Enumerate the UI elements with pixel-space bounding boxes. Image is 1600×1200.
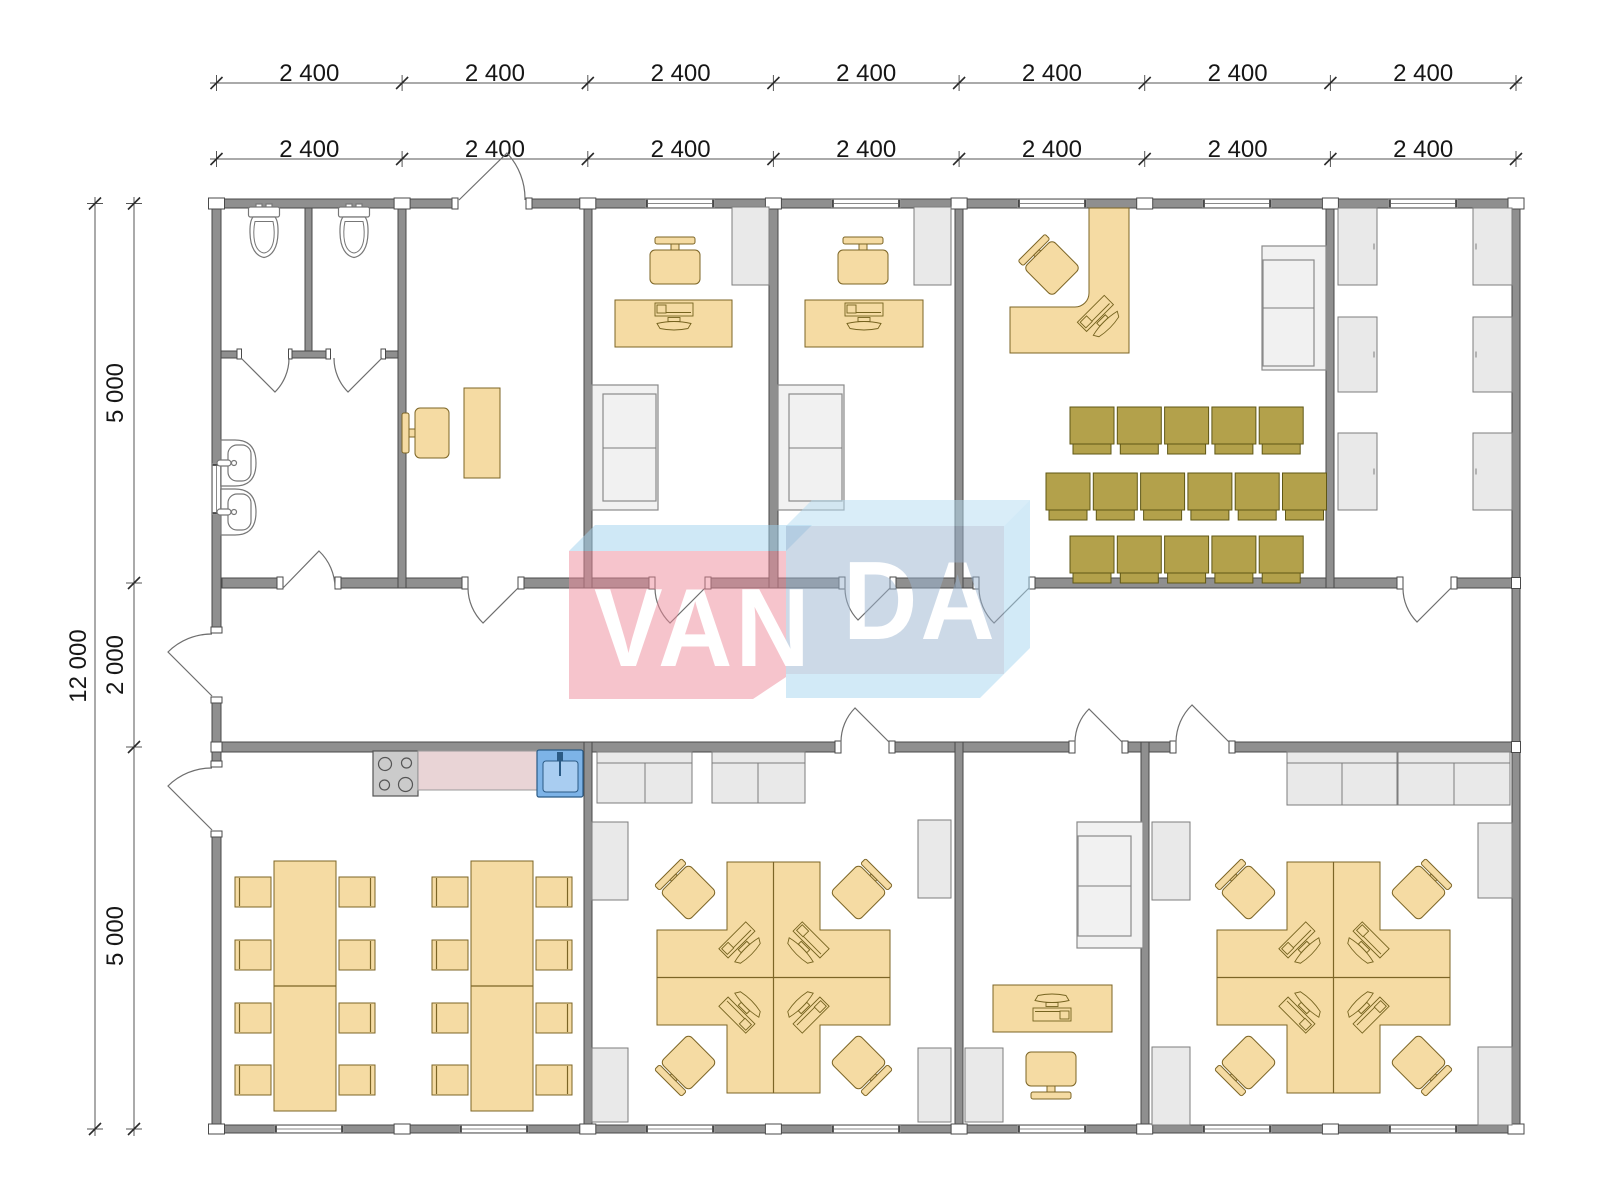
svg-text:12 000: 12 000 xyxy=(65,629,92,702)
svg-text:2 400: 2 400 xyxy=(465,136,525,163)
svg-text:2 400: 2 400 xyxy=(279,60,339,87)
svg-text:2 400: 2 400 xyxy=(651,136,711,163)
svg-text:2 000: 2 000 xyxy=(102,635,129,695)
svg-text:2 400: 2 400 xyxy=(1393,60,1453,87)
svg-text:2 400: 2 400 xyxy=(1022,60,1082,87)
svg-text:2 400: 2 400 xyxy=(1208,60,1268,87)
svg-text:2 400: 2 400 xyxy=(836,60,896,87)
svg-text:2 400: 2 400 xyxy=(1022,136,1082,163)
svg-text:2 400: 2 400 xyxy=(279,136,339,163)
svg-text:2 400: 2 400 xyxy=(465,60,525,87)
svg-text:2 400: 2 400 xyxy=(651,60,711,87)
svg-text:2 400: 2 400 xyxy=(1208,136,1268,163)
svg-text:2 400: 2 400 xyxy=(1393,136,1453,163)
svg-text:5 000: 5 000 xyxy=(102,363,129,423)
svg-text:5 000: 5 000 xyxy=(102,906,129,966)
svg-text:2 400: 2 400 xyxy=(836,136,896,163)
